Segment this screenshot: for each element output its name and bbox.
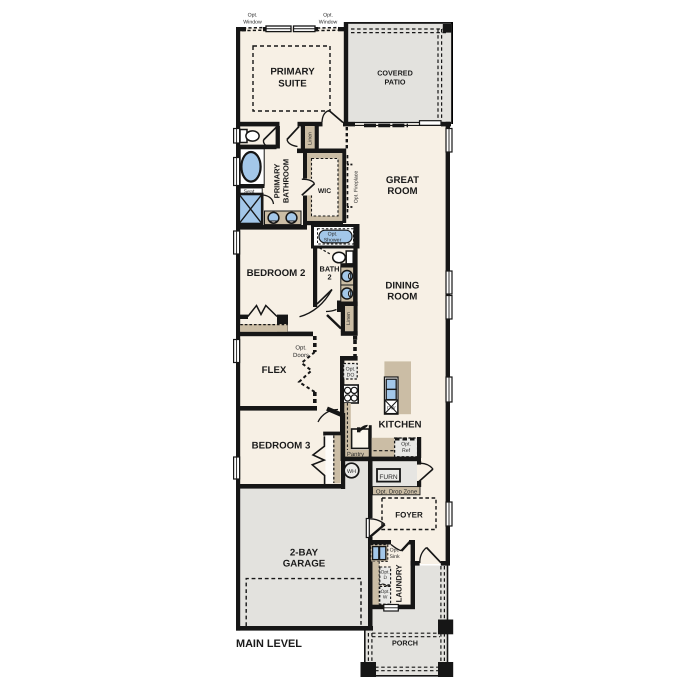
svg-text:SUITE: SUITE: [278, 79, 307, 90]
svg-text:GREAT: GREAT: [386, 175, 419, 186]
svg-text:Opt.: Opt.: [390, 548, 400, 554]
svg-text:MAIN LEVEL: MAIN LEVEL: [236, 638, 302, 650]
svg-text:Opt.: Opt.: [323, 13, 333, 19]
svg-text:Window: Window: [319, 20, 338, 26]
svg-text:2-BAY: 2-BAY: [290, 548, 319, 559]
svg-text:FOYER: FOYER: [395, 511, 423, 520]
svg-text:LAUNDRY: LAUNDRY: [395, 564, 404, 603]
svg-text:DINING: DINING: [385, 281, 419, 292]
svg-text:Opt. Drop Zone: Opt. Drop Zone: [376, 489, 418, 496]
svg-text:PRIMARY: PRIMARY: [273, 164, 282, 199]
svg-text:GARAGE: GARAGE: [283, 559, 326, 570]
svg-text:DO: DO: [347, 373, 355, 379]
svg-text:BEDROOM 3: BEDROOM 3: [252, 441, 311, 452]
svg-text:COVERED: COVERED: [377, 69, 413, 78]
svg-text:DW: DW: [387, 406, 396, 412]
svg-text:PATIO: PATIO: [385, 78, 406, 87]
svg-text:KITCHEN: KITCHEN: [378, 420, 421, 431]
svg-text:2: 2: [327, 273, 331, 282]
svg-text:FLEX: FLEX: [262, 365, 287, 376]
svg-text:WIC: WIC: [318, 188, 331, 195]
svg-text:PRIMARY: PRIMARY: [270, 67, 315, 78]
svg-text:Doors: Doors: [293, 352, 309, 359]
svg-text:Opt.: Opt.: [381, 589, 390, 595]
svg-text:FURN: FURN: [379, 474, 398, 481]
svg-text:Linen: Linen: [346, 312, 352, 325]
svg-text:W: W: [383, 595, 388, 601]
svg-text:PORCH: PORCH: [392, 639, 418, 648]
svg-text:Opt.: Opt.: [248, 13, 258, 19]
svg-text:Linen: Linen: [308, 132, 314, 145]
svg-text:WH: WH: [347, 469, 356, 475]
svg-text:ROOM: ROOM: [387, 292, 417, 303]
svg-text:BEDROOM 2: BEDROOM 2: [247, 268, 306, 279]
svg-text:Shower: Shower: [324, 238, 342, 244]
svg-text:ROOM: ROOM: [387, 186, 417, 197]
svg-text:Ref: Ref: [402, 448, 411, 454]
svg-text:Opt.: Opt.: [295, 345, 307, 352]
svg-text:Window: Window: [243, 20, 262, 26]
svg-text:Sink: Sink: [389, 554, 399, 560]
svg-text:BATHROOM: BATHROOM: [282, 159, 291, 203]
svg-text:D: D: [383, 575, 387, 581]
svg-text:Opt.: Opt.: [381, 570, 390, 576]
svg-text:Opt.: Opt.: [401, 442, 411, 448]
svg-text:Opt. Fireplace: Opt. Fireplace: [354, 171, 360, 204]
